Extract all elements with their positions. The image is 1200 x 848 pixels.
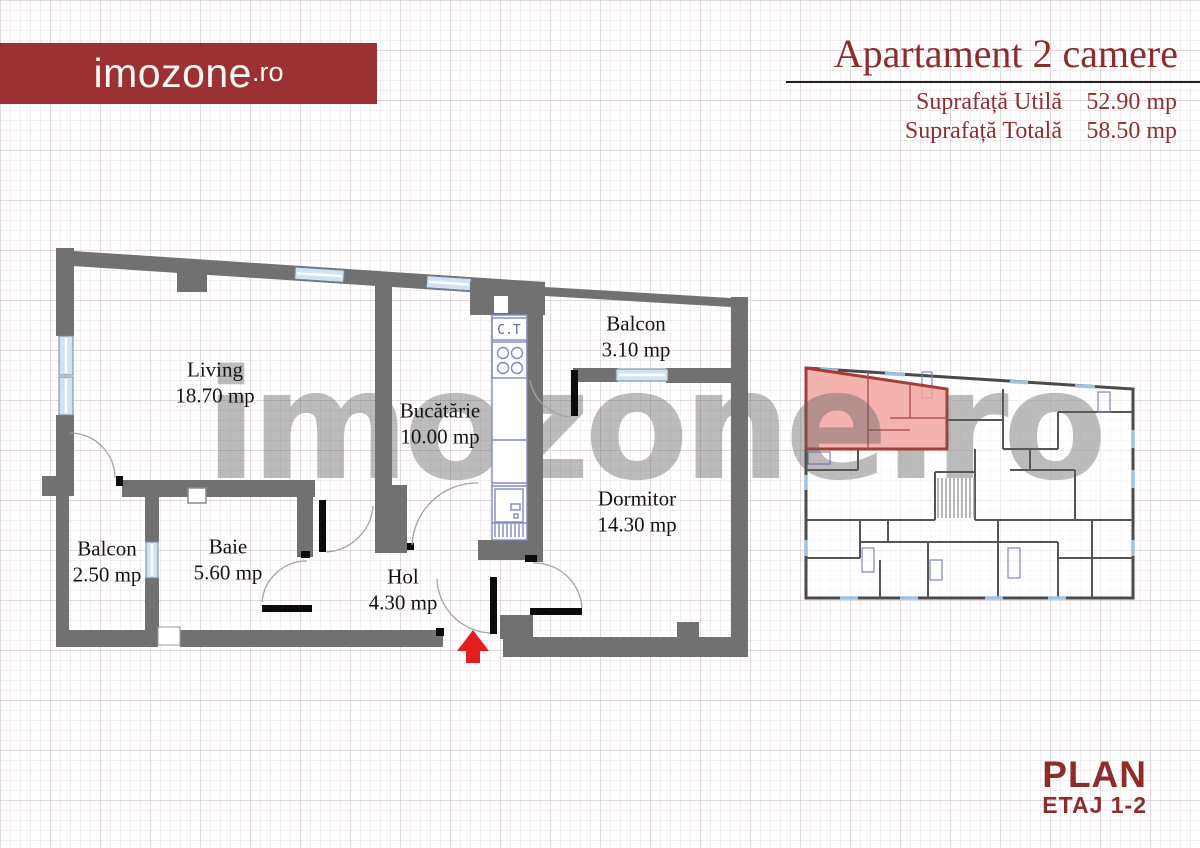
room-label-balcon-1: Balcon 3.10 mp bbox=[602, 311, 671, 362]
room-name: Bucătărie bbox=[400, 398, 480, 424]
wall-notches bbox=[158, 296, 508, 645]
spec-value: 52.90 mp bbox=[1062, 88, 1177, 117]
area-specs: Suprafață Utilă 52.90 mp Suprafață Total… bbox=[872, 88, 1177, 146]
room-name: Dormitor bbox=[597, 486, 676, 512]
plan-label: PLAN bbox=[1042, 756, 1147, 793]
window bbox=[426, 276, 471, 291]
spec-label: Suprafață Totală bbox=[872, 117, 1062, 146]
logo-text: imozone bbox=[94, 50, 252, 97]
spec-row-totala: Suprafață Totală 58.50 mp bbox=[872, 117, 1177, 146]
room-name: Hol bbox=[369, 564, 438, 590]
etaj-label: ETAJ 1-2 bbox=[1042, 793, 1147, 818]
plan-footer: PLAN ETAJ 1-2 bbox=[1042, 756, 1147, 818]
room-label-dormitor: Dormitor 14.30 mp bbox=[597, 486, 676, 537]
room-label-balcon-2: Balcon 2.50 mp bbox=[73, 536, 142, 587]
room-area: 3.10 mp bbox=[602, 337, 671, 363]
room-name: Living bbox=[175, 357, 254, 383]
spec-label: Suprafață Utilă bbox=[872, 88, 1062, 117]
kitchen-fixtures bbox=[492, 315, 527, 540]
room-area: 10.00 mp bbox=[400, 424, 480, 450]
room-label-living: Living 18.70 mp bbox=[175, 357, 254, 408]
room-name: Balcon bbox=[73, 536, 142, 562]
logo-banner: imozone.ro bbox=[0, 43, 377, 104]
spec-value: 58.50 mp bbox=[1062, 117, 1177, 146]
entrance-arrow-icon bbox=[457, 630, 489, 663]
room-area: 5.60 mp bbox=[194, 560, 263, 586]
room-label-baie: Baie 5.60 mp bbox=[194, 534, 263, 585]
room-area: 18.70 mp bbox=[175, 383, 254, 409]
boiler-label: C.T bbox=[497, 323, 521, 338]
room-area: 4.30 mp bbox=[369, 590, 438, 616]
logo-tld: .ro bbox=[252, 57, 284, 90]
spec-row-utila: Suprafață Utilă 52.90 mp bbox=[872, 88, 1177, 117]
room-label-hol: Hol 4.30 mp bbox=[369, 564, 438, 615]
room-area: 2.50 mp bbox=[73, 562, 142, 588]
page-title: Apartament 2 camere bbox=[834, 30, 1178, 77]
window bbox=[295, 267, 345, 282]
room-name: Balcon bbox=[602, 311, 671, 337]
title-underline bbox=[786, 81, 1200, 83]
room-name: Baie bbox=[194, 534, 263, 560]
floorplan-page: { "header": { "logo": { "name": "imozone… bbox=[0, 0, 1200, 848]
room-label-bucatarie: Bucătărie 10.00 mp bbox=[400, 398, 480, 449]
room-area: 14.30 mp bbox=[597, 512, 676, 538]
